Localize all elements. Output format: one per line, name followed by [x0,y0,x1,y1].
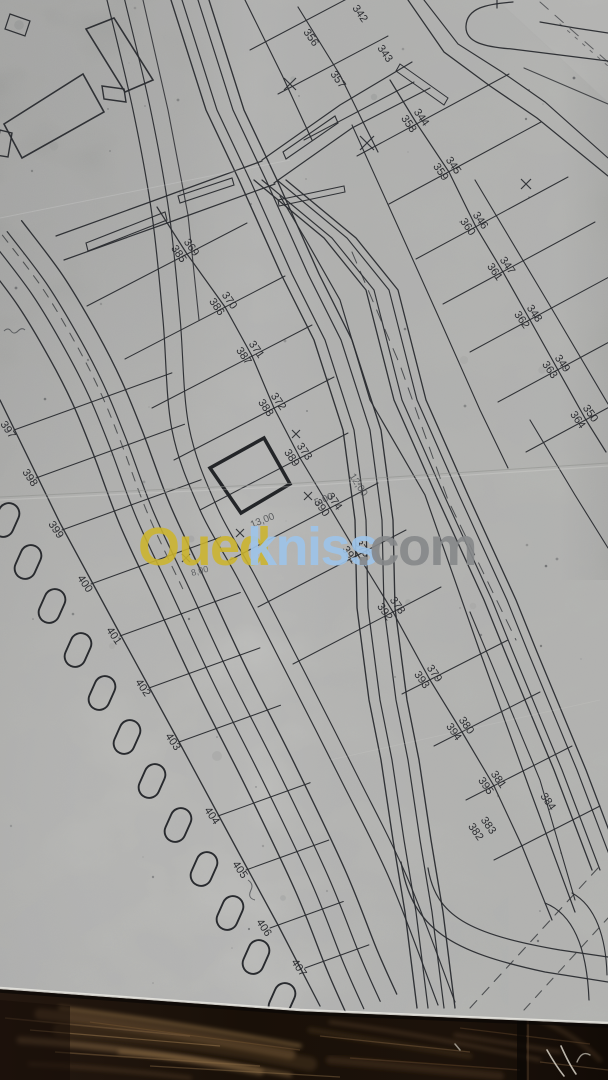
svg-text:.com: .com [356,517,476,577]
